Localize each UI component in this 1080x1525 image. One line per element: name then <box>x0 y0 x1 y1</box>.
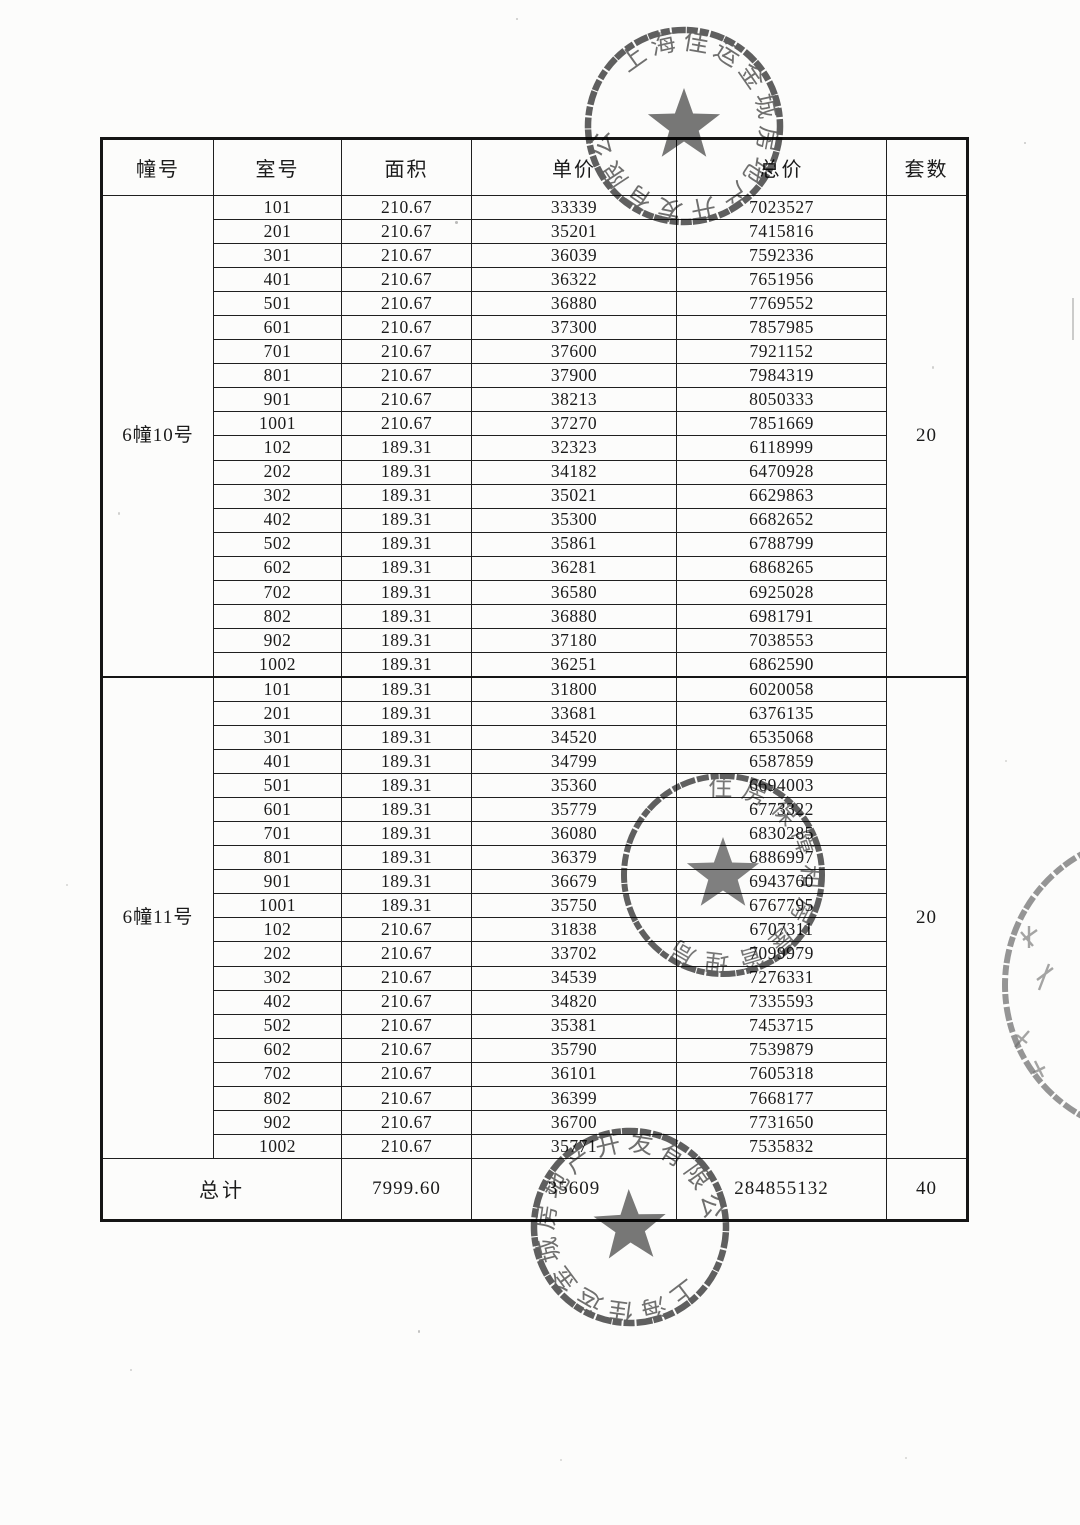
table-row: 901210.67382138050333 <box>102 388 968 412</box>
total-price-cell: 7851669 <box>677 412 887 436</box>
area-cell: 210.67 <box>342 220 472 244</box>
room-number-cell: 201 <box>214 220 342 244</box>
seal-ring <box>1005 845 1080 1125</box>
area-cell: 210.67 <box>342 1014 472 1038</box>
table-row: 201189.31336816376135 <box>102 701 968 725</box>
table-row: 901189.31366796943760 <box>102 870 968 894</box>
total-price-cell: 6868265 <box>677 556 887 580</box>
unit-price-cell: 36101 <box>472 1062 677 1086</box>
room-number-cell: 301 <box>214 244 342 268</box>
unit-price-cell: 36880 <box>472 604 677 628</box>
area-cell: 210.67 <box>342 1038 472 1062</box>
table-row: 302189.31350216629863 <box>102 484 968 508</box>
area-cell: 189.31 <box>342 750 472 774</box>
building-label: 6幢11号 <box>102 677 214 1158</box>
room-number-cell: 701 <box>214 340 342 364</box>
area-cell: 189.31 <box>342 870 472 894</box>
room-number-cell: 902 <box>214 628 342 652</box>
table-row: 601189.31357796773322 <box>102 798 968 822</box>
area-cell: 210.67 <box>342 244 472 268</box>
table-row: 602210.67357907539879 <box>102 1038 968 1062</box>
area-cell: 210.67 <box>342 918 472 942</box>
table-row: 6幢11号101189.3131800602005820 <box>102 677 968 702</box>
area-cell: 189.31 <box>342 508 472 532</box>
room-number-cell: 702 <box>214 1062 342 1086</box>
table-row: 902189.31371807038553 <box>102 628 968 652</box>
unit-price-cell: 35861 <box>472 532 677 556</box>
room-number-cell: 501 <box>214 774 342 798</box>
header-building: 幢号 <box>102 139 214 196</box>
table-row: 502210.67353817453715 <box>102 1014 968 1038</box>
room-number-cell: 202 <box>214 942 342 966</box>
total-price-cell: 6376135 <box>677 701 887 725</box>
total-price-cell: 7668177 <box>677 1086 887 1110</box>
total-price-cell: 6682652 <box>677 508 887 532</box>
unit-price-cell: 36281 <box>472 556 677 580</box>
total-price-cell: 6629863 <box>677 484 887 508</box>
room-number-cell: 702 <box>214 580 342 604</box>
area-cell: 210.67 <box>342 196 472 220</box>
unit-price-cell: 36399 <box>472 1086 677 1110</box>
room-number-cell: 402 <box>214 990 342 1014</box>
table-row: 801210.67379007984319 <box>102 364 968 388</box>
total-label: 总计 <box>102 1158 342 1220</box>
room-number-cell: 1001 <box>214 894 342 918</box>
table-row: 102210.67318386707311 <box>102 918 968 942</box>
room-number-cell: 102 <box>214 436 342 460</box>
room-number-cell: 401 <box>214 268 342 292</box>
area-cell: 189.31 <box>342 484 472 508</box>
table-row: 401210.67363227651956 <box>102 268 968 292</box>
total-price-cell: 6862590 <box>677 652 887 677</box>
room-number-cell: 1002 <box>214 1134 342 1158</box>
table-row: 801189.31363796886997 <box>102 846 968 870</box>
unit-price-cell: 35381 <box>472 1014 677 1038</box>
room-number-cell: 602 <box>214 1038 342 1062</box>
total-price-cell: 7605318 <box>677 1062 887 1086</box>
table-row: 702189.31365806925028 <box>102 580 968 604</box>
price-table: 幢号 室号 面积 单价 总价 套数 6幢10号101210.6733339702… <box>100 137 969 1222</box>
area-cell: 189.31 <box>342 556 472 580</box>
table-row: 501210.67368807769552 <box>102 292 968 316</box>
table-body: 6幢10号101210.6733339702352720201210.67352… <box>102 196 968 1159</box>
table-row: 401189.31347996587859 <box>102 750 968 774</box>
area-cell: 210.67 <box>342 1134 472 1158</box>
area-cell: 210.67 <box>342 364 472 388</box>
area-cell: 210.67 <box>342 340 472 364</box>
room-number-cell: 601 <box>214 316 342 340</box>
table-row: 1002189.31362516862590 <box>102 652 968 677</box>
table-row: 701210.67376007921152 <box>102 340 968 364</box>
room-number-cell: 901 <box>214 388 342 412</box>
unit-price-cell: 38213 <box>472 388 677 412</box>
unit-price-cell: 34520 <box>472 726 677 750</box>
header-unit-count: 套数 <box>887 139 968 196</box>
unit-price-cell: 34820 <box>472 990 677 1014</box>
table-row: 501189.31353606694003 <box>102 774 968 798</box>
partial-seal-right <box>995 845 1080 1125</box>
area-cell: 189.31 <box>342 894 472 918</box>
unit-price-cell: 37600 <box>472 340 677 364</box>
total-price-cell: 7038553 <box>677 628 887 652</box>
table-row: 502189.31358616788799 <box>102 532 968 556</box>
header-row: 幢号 室号 面积 单价 总价 套数 <box>102 139 968 196</box>
table-row: 201210.67352017415816 <box>102 220 968 244</box>
room-number-cell: 401 <box>214 750 342 774</box>
table-row: 802189.31368806981791 <box>102 604 968 628</box>
area-cell: 189.31 <box>342 604 472 628</box>
room-number-cell: 302 <box>214 484 342 508</box>
room-number-cell: 502 <box>214 532 342 556</box>
room-number-cell: 902 <box>214 1110 342 1134</box>
unit-count-label: 20 <box>887 677 968 1158</box>
unit-price-cell: 36580 <box>472 580 677 604</box>
table-row: 1001189.31357506767795 <box>102 894 968 918</box>
unit-price-cell: 36322 <box>472 268 677 292</box>
star-icon <box>648 88 720 157</box>
total-price-cell: 6788799 <box>677 532 887 556</box>
total-price-cell: 6925028 <box>677 580 887 604</box>
room-number-cell: 502 <box>214 1014 342 1038</box>
star-icon <box>687 837 759 906</box>
table-row: 601210.67373007857985 <box>102 316 968 340</box>
table-row: 302210.67345397276331 <box>102 966 968 990</box>
area-cell: 189.31 <box>342 822 472 846</box>
room-number-cell: 301 <box>214 726 342 750</box>
header-room: 室号 <box>214 139 342 196</box>
area-cell: 210.67 <box>342 388 472 412</box>
room-number-cell: 801 <box>214 846 342 870</box>
table-row: 6幢10号101210.6733339702352720 <box>102 196 968 220</box>
total-unit-count: 40 <box>887 1158 968 1220</box>
room-number-cell: 201 <box>214 701 342 725</box>
table-row: 1001210.67372707851669 <box>102 412 968 436</box>
total-price-cell: 7592336 <box>677 244 887 268</box>
total-price-cell: 7921152 <box>677 340 887 364</box>
unit-price-cell: 35021 <box>472 484 677 508</box>
total-price-cell: 7857985 <box>677 316 887 340</box>
room-number-cell: 101 <box>214 677 342 702</box>
total-price-cell: 7539879 <box>677 1038 887 1062</box>
room-number-cell: 102 <box>214 918 342 942</box>
total-price-cell: 6535068 <box>677 726 887 750</box>
area-cell: 189.31 <box>342 701 472 725</box>
room-number-cell: 602 <box>214 556 342 580</box>
unit-price-cell: 35790 <box>472 1038 677 1062</box>
area-cell: 210.67 <box>342 292 472 316</box>
area-cell: 189.31 <box>342 798 472 822</box>
unit-count-label: 20 <box>887 196 968 677</box>
total-price-cell: 7984319 <box>677 364 887 388</box>
total-price-cell: 6981791 <box>677 604 887 628</box>
scanned-document-page: 幢号 室号 面积 单价 总价 套数 6幢10号101210.6733339702… <box>0 0 1080 1525</box>
unit-price-cell: 36880 <box>472 292 677 316</box>
table-row: 602189.31362816868265 <box>102 556 968 580</box>
header-area: 面积 <box>342 139 472 196</box>
room-number-cell: 802 <box>214 1086 342 1110</box>
table-row: 202189.31341826470928 <box>102 460 968 484</box>
unit-price-cell: 37300 <box>472 316 677 340</box>
building-label: 6幢10号 <box>102 196 214 677</box>
unit-price-cell: 35300 <box>472 508 677 532</box>
room-number-cell: 802 <box>214 604 342 628</box>
unit-price-cell: 33681 <box>472 701 677 725</box>
area-cell: 189.31 <box>342 677 472 702</box>
area-cell: 189.31 <box>342 726 472 750</box>
area-cell: 189.31 <box>342 580 472 604</box>
unit-price-cell: 37180 <box>472 628 677 652</box>
room-number-cell: 202 <box>214 460 342 484</box>
unit-price-cell: 37900 <box>472 364 677 388</box>
table-row: 301189.31345206535068 <box>102 726 968 750</box>
room-number-cell: 801 <box>214 364 342 388</box>
total-area: 7999.60 <box>342 1158 472 1220</box>
total-price-cell: 6020058 <box>677 677 887 702</box>
table-row: 102189.31323236118999 <box>102 436 968 460</box>
unit-price-cell: 37270 <box>472 412 677 436</box>
area-cell: 189.31 <box>342 774 472 798</box>
area-cell: 189.31 <box>342 846 472 870</box>
room-number-cell: 101 <box>214 196 342 220</box>
area-cell: 189.31 <box>342 532 472 556</box>
unit-price-cell: 36251 <box>472 652 677 677</box>
total-price-cell: 6470928 <box>677 460 887 484</box>
total-price-cell: 7335593 <box>677 990 887 1014</box>
total-price-cell: 7651956 <box>677 268 887 292</box>
bureau-seal-stamp-middle: 住房保障和房屋管理局 <box>617 769 829 981</box>
unit-price-cell: 36039 <box>472 244 677 268</box>
area-cell: 210.67 <box>342 412 472 436</box>
area-cell: 210.67 <box>342 1062 472 1086</box>
room-number-cell: 901 <box>214 870 342 894</box>
star-icon <box>593 1188 668 1259</box>
area-cell: 189.31 <box>342 652 472 677</box>
area-cell: 210.67 <box>342 990 472 1014</box>
table-row: 802210.67363997668177 <box>102 1086 968 1110</box>
area-cell: 210.67 <box>342 1110 472 1134</box>
table-row: 702210.67361017605318 <box>102 1062 968 1086</box>
area-cell: 189.31 <box>342 436 472 460</box>
area-cell: 210.67 <box>342 966 472 990</box>
table-row: 301210.67360397592336 <box>102 244 968 268</box>
table-row: 402189.31353006682652 <box>102 508 968 532</box>
table-row: 402210.67348207335593 <box>102 990 968 1014</box>
room-number-cell: 601 <box>214 798 342 822</box>
room-number-cell: 1002 <box>214 652 342 677</box>
area-cell: 210.67 <box>342 316 472 340</box>
area-cell: 189.31 <box>342 460 472 484</box>
total-price-cell: 7769552 <box>677 292 887 316</box>
area-cell: 189.31 <box>342 628 472 652</box>
area-cell: 210.67 <box>342 1086 472 1110</box>
room-number-cell: 302 <box>214 966 342 990</box>
company-seal-stamp-top: 上海佳运金城房地产开发有限公司 <box>581 23 787 229</box>
unit-price-cell: 32323 <box>472 436 677 460</box>
room-number-cell: 402 <box>214 508 342 532</box>
area-cell: 210.67 <box>342 268 472 292</box>
unit-price-cell: 34182 <box>472 460 677 484</box>
company-seal-stamp-bottom: 上海佳运金城房地产开发有限公司 <box>523 1120 736 1333</box>
room-number-cell: 501 <box>214 292 342 316</box>
unit-price-cell: 31800 <box>472 677 677 702</box>
total-price-cell: 8050333 <box>677 388 887 412</box>
room-number-cell: 1001 <box>214 412 342 436</box>
total-price-cell: 6118999 <box>677 436 887 460</box>
area-cell: 210.67 <box>342 942 472 966</box>
room-number-cell: 701 <box>214 822 342 846</box>
table-row: 701189.31360806830285 <box>102 822 968 846</box>
table-row: 202210.67337027099979 <box>102 942 968 966</box>
total-price-cell: 7453715 <box>677 1014 887 1038</box>
